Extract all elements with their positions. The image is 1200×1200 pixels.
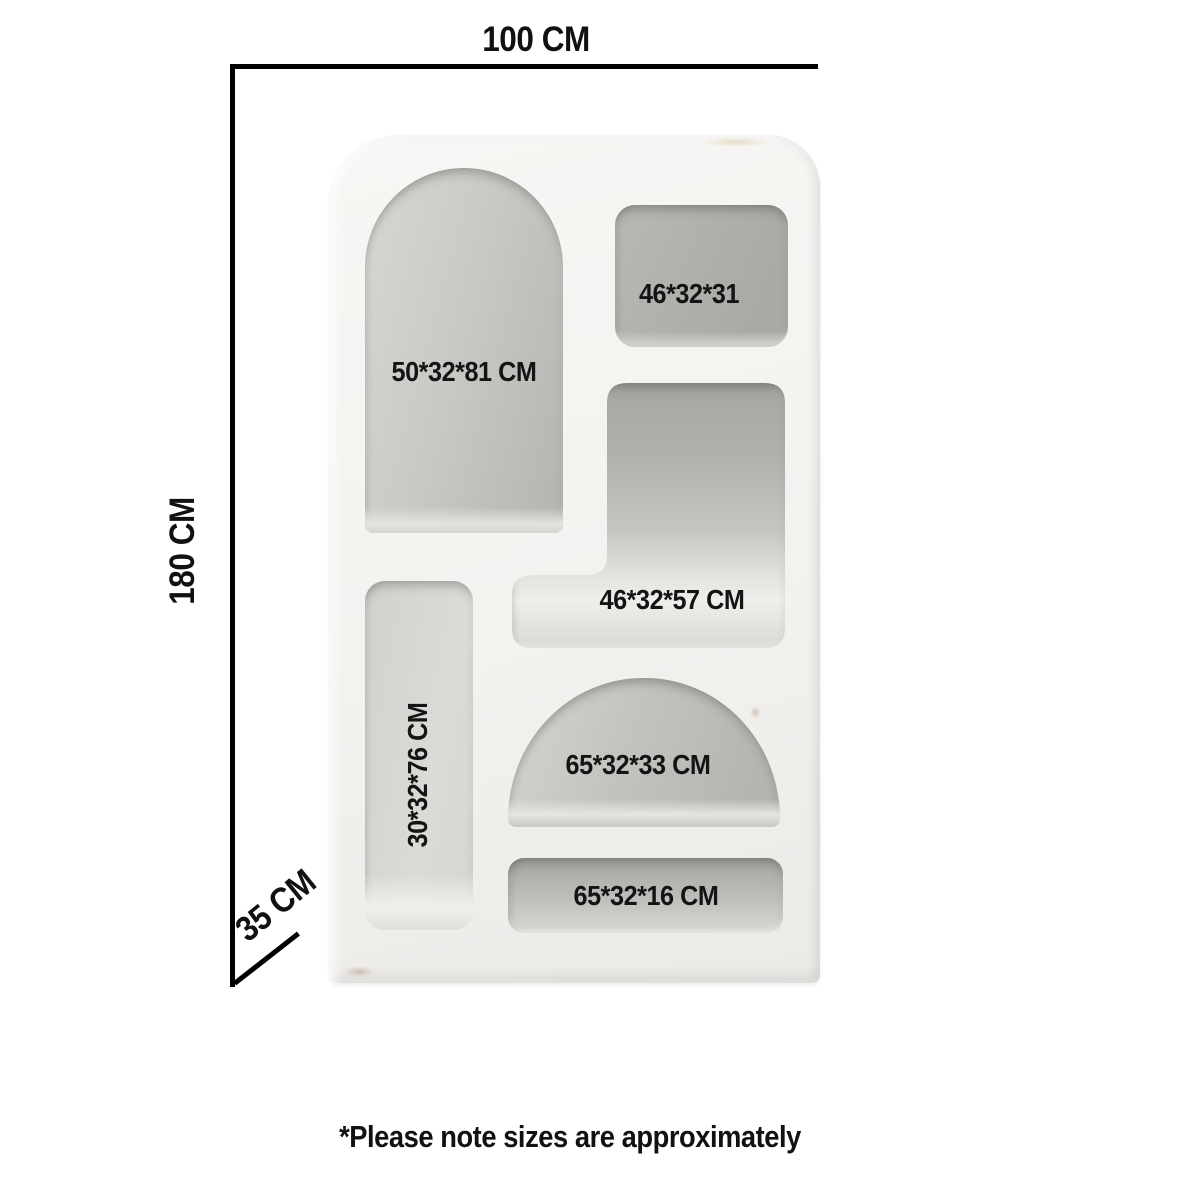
niche-size-label: 50*32*81 CM [392,356,537,388]
width-dimension-line [230,64,818,69]
arched-shelf-unit: 50*32*81 CM 46*32*31 46*32*57 CM 30*32*7… [330,135,820,983]
niche-size-label: 65*32*33 CM [566,749,711,781]
niche-floor [365,874,473,930]
niche-size-label: 30*32*76 CM [402,703,434,848]
bottom-strip-niche: 65*32*16 CM [508,858,783,933]
niche-floor [365,507,563,533]
depth-dimension-line [233,932,300,986]
height-dimension-line [230,64,235,987]
niche-size-label: 65*32*16 CM [573,880,718,912]
niche-size-label: 46*32*31 [639,278,739,310]
bottom-arch-niche: 65*32*33 CM [508,678,780,827]
niche-floor [615,331,788,347]
width-dimension-label: 100 CM [482,20,590,60]
left-column-niche: 30*32*76 CM [365,581,473,930]
product-dimension-diagram: 100 CM 180 CM 35 CM 50*32*81 CM 46*32*31… [0,0,1200,1200]
tall-arch-niche: 50*32*81 CM [365,168,563,533]
top-right-niche: 46*32*31 [615,205,788,347]
height-dimension-label: 180 CM [163,497,203,605]
niche-floor [508,799,780,827]
niche-size-label: 46*32*57 CM [600,584,745,616]
depth-dimension-label: 35 CM [228,862,324,950]
sizes-disclaimer-note: *Please note sizes are approximately [339,1119,801,1155]
